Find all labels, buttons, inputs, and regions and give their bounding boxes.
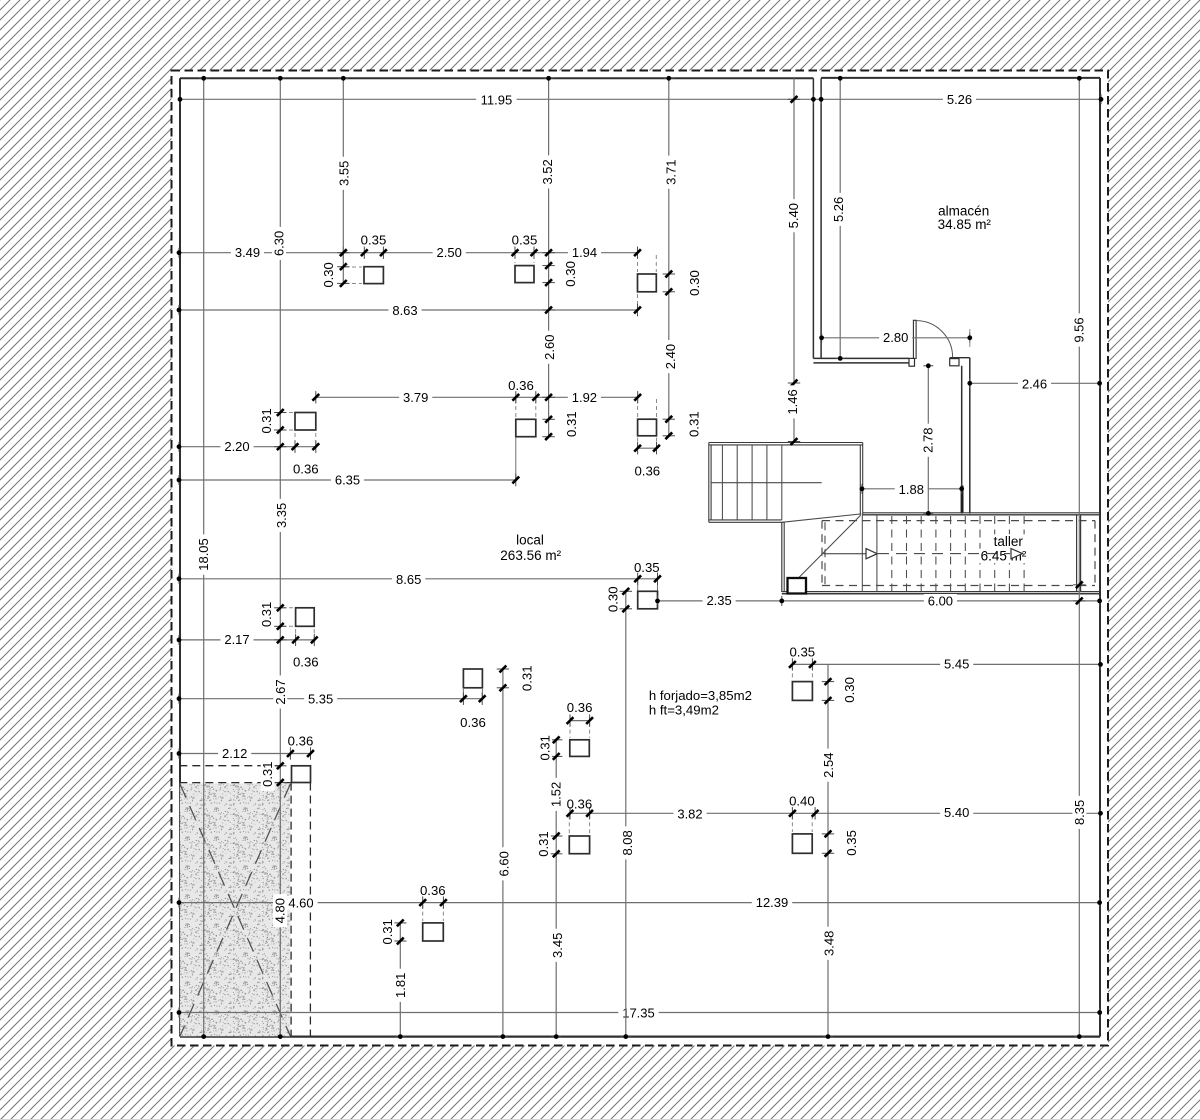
svg-text:5.40: 5.40 bbox=[944, 805, 969, 820]
svg-text:2.12: 2.12 bbox=[222, 746, 247, 761]
svg-text:0.30: 0.30 bbox=[563, 261, 578, 287]
svg-text:3.35: 3.35 bbox=[274, 503, 289, 528]
svg-text:0.31: 0.31 bbox=[259, 408, 274, 433]
svg-text:h ft=3,49m2: h ft=3,49m2 bbox=[649, 702, 719, 717]
svg-text:12.39: 12.39 bbox=[756, 895, 789, 910]
svg-text:1.88: 1.88 bbox=[899, 482, 924, 497]
svg-text:0.35: 0.35 bbox=[361, 233, 387, 248]
svg-text:3.55: 3.55 bbox=[337, 161, 352, 186]
svg-text:1.46: 1.46 bbox=[785, 389, 800, 414]
svg-text:2.60: 2.60 bbox=[542, 335, 557, 360]
svg-text:1.92: 1.92 bbox=[572, 390, 597, 405]
svg-text:6.45 m²: 6.45 m² bbox=[981, 548, 1027, 563]
svg-text:3.48: 3.48 bbox=[821, 931, 836, 956]
svg-text:4.80: 4.80 bbox=[273, 898, 288, 923]
svg-text:11.95: 11.95 bbox=[481, 93, 513, 108]
svg-text:5.45: 5.45 bbox=[944, 657, 969, 672]
svg-text:3.71: 3.71 bbox=[664, 160, 679, 185]
svg-text:6.00: 6.00 bbox=[928, 594, 953, 609]
svg-text:0.36: 0.36 bbox=[293, 461, 319, 476]
svg-text:0.30: 0.30 bbox=[687, 270, 702, 296]
svg-text:0.31: 0.31 bbox=[259, 602, 274, 627]
svg-text:0.36: 0.36 bbox=[567, 700, 593, 715]
svg-text:9.56: 9.56 bbox=[1071, 317, 1086, 342]
svg-text:0.35: 0.35 bbox=[512, 233, 538, 248]
svg-text:0.36: 0.36 bbox=[634, 464, 660, 479]
svg-text:0.35: 0.35 bbox=[789, 644, 815, 659]
svg-text:8.63: 8.63 bbox=[392, 303, 417, 318]
svg-text:0.31: 0.31 bbox=[537, 735, 552, 760]
svg-text:17.35: 17.35 bbox=[622, 1006, 655, 1021]
svg-text:2.20: 2.20 bbox=[224, 439, 249, 454]
svg-text:0.31: 0.31 bbox=[520, 665, 535, 691]
svg-text:2.78: 2.78 bbox=[920, 428, 935, 453]
svg-text:0.31: 0.31 bbox=[536, 831, 551, 856]
svg-text:0.35: 0.35 bbox=[844, 830, 859, 856]
svg-text:5.26: 5.26 bbox=[947, 92, 972, 107]
svg-text:0.35: 0.35 bbox=[634, 560, 660, 575]
svg-text:2.54: 2.54 bbox=[821, 753, 836, 778]
svg-text:263.56 m²: 263.56 m² bbox=[500, 548, 561, 563]
svg-text:0.36: 0.36 bbox=[460, 715, 486, 730]
svg-text:0.31: 0.31 bbox=[687, 411, 702, 437]
svg-text:1.94: 1.94 bbox=[572, 245, 597, 260]
svg-text:8.08: 8.08 bbox=[620, 830, 635, 855]
svg-text:0.31: 0.31 bbox=[260, 762, 275, 787]
svg-text:3.45: 3.45 bbox=[550, 933, 565, 958]
svg-text:6.35: 6.35 bbox=[335, 473, 360, 488]
svg-text:0.30: 0.30 bbox=[842, 677, 857, 703]
svg-text:0.36: 0.36 bbox=[293, 655, 319, 670]
svg-text:0.36: 0.36 bbox=[288, 734, 314, 749]
svg-text:0.40: 0.40 bbox=[789, 793, 815, 808]
svg-text:local: local bbox=[516, 533, 544, 548]
svg-text:0.36: 0.36 bbox=[420, 883, 446, 898]
svg-text:0.30: 0.30 bbox=[606, 586, 621, 612]
svg-text:3.79: 3.79 bbox=[403, 390, 428, 405]
svg-text:5.26: 5.26 bbox=[831, 197, 846, 222]
svg-text:0.31: 0.31 bbox=[564, 411, 579, 437]
svg-text:1.52: 1.52 bbox=[548, 782, 563, 807]
svg-text:8.65: 8.65 bbox=[396, 572, 421, 587]
svg-text:2.40: 2.40 bbox=[663, 344, 678, 369]
svg-text:0.31: 0.31 bbox=[380, 919, 395, 944]
svg-text:2.35: 2.35 bbox=[706, 593, 731, 608]
svg-text:3.49: 3.49 bbox=[235, 245, 260, 260]
svg-text:4.60: 4.60 bbox=[288, 895, 313, 910]
svg-text:5.35: 5.35 bbox=[308, 691, 333, 706]
svg-text:2.50: 2.50 bbox=[437, 245, 462, 260]
svg-text:18.05: 18.05 bbox=[196, 538, 211, 571]
svg-text:2.46: 2.46 bbox=[1022, 376, 1047, 391]
svg-text:2.80: 2.80 bbox=[883, 330, 908, 345]
svg-text:3.52: 3.52 bbox=[540, 159, 555, 184]
svg-text:1.81: 1.81 bbox=[393, 973, 408, 998]
svg-text:0.36: 0.36 bbox=[508, 378, 534, 393]
svg-text:0.30: 0.30 bbox=[321, 262, 336, 287]
svg-text:5.40: 5.40 bbox=[786, 203, 801, 228]
svg-text:h forjado=3,85m2: h forjado=3,85m2 bbox=[649, 688, 752, 703]
svg-text:3.82: 3.82 bbox=[677, 806, 702, 821]
svg-text:0.36: 0.36 bbox=[567, 796, 593, 811]
svg-text:6.60: 6.60 bbox=[496, 851, 511, 876]
svg-text:34.85 m²: 34.85 m² bbox=[938, 217, 992, 232]
svg-text:2.67: 2.67 bbox=[273, 679, 288, 704]
svg-text:taller: taller bbox=[994, 534, 1024, 549]
svg-text:8.35: 8.35 bbox=[1072, 800, 1087, 825]
svg-text:6.30: 6.30 bbox=[272, 231, 287, 256]
svg-text:2.17: 2.17 bbox=[224, 632, 249, 647]
